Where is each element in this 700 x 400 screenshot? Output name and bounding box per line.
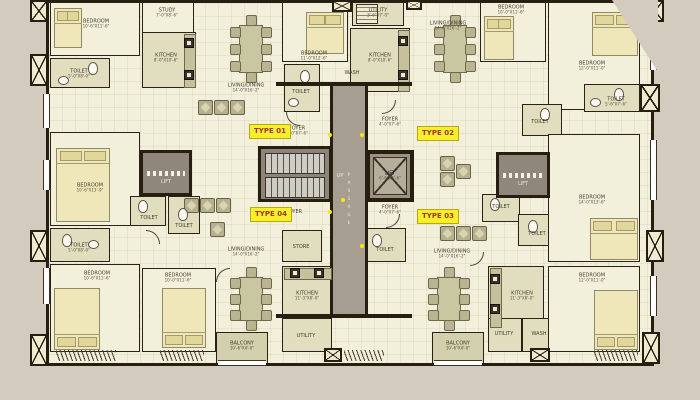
blanket-line (162, 332, 206, 333)
chair-icon (261, 278, 272, 289)
chair-icon (230, 44, 241, 55)
blanket-line (590, 233, 638, 234)
lift-door-strip (503, 173, 543, 178)
bed-icon (594, 290, 638, 350)
up-text: UP (337, 173, 344, 179)
sofa-seat-icon (214, 100, 229, 115)
duct-x-icon (406, 0, 422, 10)
duct-x-icon (332, 0, 352, 12)
room-label-bedroom7: BEDROOM10'-6"X11'-6" (84, 271, 111, 282)
room-dims: 8'-0"X10'-6" (154, 59, 178, 64)
pillow-icon (616, 221, 635, 231)
sofa-seat-icon (440, 226, 455, 241)
lift-dims: 6'-6"X6'-6" (379, 177, 401, 182)
pillow-icon (309, 15, 325, 25)
room-name: STORE (293, 244, 310, 250)
sofa-seat-icon (230, 100, 245, 115)
room-dims: 10'-6"X4'-0" (446, 347, 470, 352)
chair-icon (261, 27, 272, 38)
room-label-balcony1: BALCONY10'-6"X4'-0" (230, 341, 254, 352)
sink-icon (398, 36, 408, 46)
chair-icon (428, 278, 439, 289)
room-name: TOILET (292, 89, 309, 95)
room-label-living3: LIVING/DINING14'-0"X16'-2" (228, 247, 265, 258)
room-dims: 14'-0"X16'-2" (434, 255, 471, 260)
room-label-wash4: WASH (531, 331, 546, 337)
chair-icon (261, 294, 272, 305)
chair-icon (246, 72, 257, 83)
blanket-line (484, 31, 514, 32)
chair-icon (230, 61, 241, 72)
room-label-toilet8: TOILET (376, 247, 393, 253)
room-label-toilet4: TOILET5'-6"X7'-6" (605, 97, 627, 108)
sofa-seat-icon (456, 164, 471, 179)
sink-icon (290, 268, 300, 278)
sofa-seat-icon (200, 198, 215, 213)
room-dims: 4'-0"X7'-6" (379, 123, 401, 128)
type-badge-04: TYPE 04 (250, 207, 292, 222)
lift-label-right: LIFT (518, 181, 528, 187)
shaft-x-icon (30, 54, 48, 86)
pillow-icon (498, 19, 511, 29)
sofa-seat-icon (440, 156, 455, 171)
sink-icon (490, 274, 500, 284)
room-label-living4: LIVING/DINING14'-0"X16'-2" (434, 249, 471, 260)
room-label-study: STUDY7'-0"X8'-6" (156, 8, 178, 19)
sofa-seat-icon (456, 226, 471, 241)
room-name: UTILITY (297, 333, 316, 339)
stairs-up-label: UP (337, 173, 344, 179)
dining-table-icon (232, 270, 270, 328)
chair-icon (444, 320, 455, 331)
room-name: TOILET (376, 247, 393, 253)
room-label-store: STORE (293, 244, 310, 250)
room-name: TOILET (531, 119, 548, 125)
type-badge-02: TYPE 02 (417, 126, 459, 141)
room-dims: 5'-0"X8'-0" (68, 75, 90, 80)
chair-icon (459, 278, 470, 289)
room-label-foyer4: FOYER4'-0"X7'-6" (379, 205, 401, 216)
room-label-toilet6: TOILET (175, 223, 192, 229)
chair-icon (261, 310, 272, 321)
sink-icon (184, 38, 194, 48)
chair-icon (230, 27, 241, 38)
toilet-wc-icon (138, 200, 148, 213)
chair-icon (459, 310, 470, 321)
room-name: WASH (531, 331, 546, 337)
room-label-kitchen3: KITCHEN11'-3"X8'-0" (295, 291, 319, 302)
chair-icon (230, 310, 241, 321)
room-label-toilet1: TOILET5'-0"X8'-0" (68, 69, 90, 80)
window (43, 94, 50, 128)
dining-table-icon (430, 270, 468, 328)
room-dims: 10'-6"X4'-0" (230, 347, 254, 352)
type-badge-01: TYPE 01 (249, 124, 291, 139)
stove-icon (490, 304, 500, 314)
room-label-bedroom8: BEDROOM10'-0"X11'-6" (165, 273, 192, 284)
room-label-utility2: UTILITY3'-6"X7'-0" (367, 8, 389, 19)
lift-label-left: LIFT (161, 179, 171, 185)
room-label-bedroom3: BEDROOM10'-0"X11'-6" (498, 5, 525, 16)
shaft-x-icon (30, 0, 48, 22)
room-label-foyer2: FOYER4'-0"X7'-6" (379, 117, 401, 128)
table-top (239, 25, 263, 73)
sofa-seat-icon (198, 100, 213, 115)
blanket-line (306, 27, 344, 28)
lift-shaft-left (140, 150, 192, 196)
room-dims: 10'-0"X11'-6" (165, 279, 192, 284)
window (650, 276, 657, 316)
room-label-toilet7: TOILET5'-0"X8'-0" (68, 243, 90, 254)
room-label-kitchen1: KITCHEN8'-0"X10'-6" (154, 53, 178, 64)
chair-icon (261, 44, 272, 55)
table-top (443, 25, 467, 73)
chair-icon (230, 294, 241, 305)
blanket-line (56, 163, 110, 164)
balcony-railing-icon (160, 350, 204, 361)
room-label-toilet3: TOILET (531, 119, 548, 125)
room-label-bedroom5: BEDROOM10'-6"X13'-9" (77, 183, 104, 194)
lift-text: LIFT (518, 181, 528, 187)
chair-icon (428, 310, 439, 321)
stair-flight-lower (265, 177, 325, 198)
shaft-x-icon (642, 332, 660, 364)
balcony-railing-icon (56, 350, 116, 361)
room-name: TOILET (492, 204, 509, 210)
stove-icon (184, 70, 194, 80)
passage-dot-icon (360, 133, 364, 137)
window (650, 140, 657, 200)
sofa-seat-icon (210, 222, 225, 237)
room-label-bedroom2: BEDROOM11'-0"X12'-6" (301, 51, 328, 62)
pillow-icon (597, 337, 615, 347)
bed-icon (54, 288, 100, 350)
room-label-bedroom9: BEDROOM12'-0"X11'-0" (579, 273, 606, 284)
pillow-icon (185, 335, 203, 345)
room-dims: 10'-6"X11'-6" (84, 277, 111, 282)
chair-icon (459, 294, 470, 305)
core-wall-bottom (276, 314, 412, 318)
stairs (258, 146, 332, 202)
table-top (437, 277, 461, 321)
toilet-wc-icon (372, 234, 382, 247)
room-dims: 11'-3"X8'-0" (295, 297, 319, 302)
room-dims: 12'-0"X11'-0" (579, 67, 606, 72)
room-label-toilet5: TOILET (140, 215, 157, 221)
chair-icon (261, 61, 272, 72)
chair-icon (428, 294, 439, 305)
bed-icon (162, 288, 206, 348)
pillow-icon (595, 15, 614, 25)
room-label-toilet2: TOILET (292, 89, 309, 95)
passage-dot-icon (360, 244, 364, 248)
passage-dot-icon (328, 210, 332, 214)
room-label-utility3: UTILITY (297, 333, 316, 339)
window (434, 360, 482, 366)
room-label-kitchen2: KITCHEN8'-0"X10'-6" (368, 53, 392, 64)
bed-icon (54, 8, 82, 48)
core-wall-top (276, 82, 412, 86)
room-name: TOILET (175, 223, 192, 229)
shaft-x-icon (640, 84, 660, 112)
chair-icon (465, 27, 476, 38)
passage-corridor: PASSAGE (330, 84, 368, 316)
room-label-bedroom6: BEDROOM14'-0"X13'-6" (579, 195, 606, 206)
pillow-icon (165, 335, 183, 345)
stove-icon (314, 268, 324, 278)
pillow-icon (57, 337, 76, 347)
room-dims: 10'-6"X11'-6" (83, 25, 110, 30)
room-floor-toilet5 (130, 196, 166, 226)
chair-icon (246, 267, 257, 278)
room-dims: 11'-0"X12'-6" (301, 57, 328, 62)
room-label-toilet9: TOILET (492, 204, 509, 210)
duct-x-icon (324, 348, 342, 362)
blanket-line (54, 334, 100, 335)
pillow-icon (593, 221, 612, 231)
lift-label-center: LIFT6'-6"X6'-6" (379, 171, 401, 182)
basin-icon (590, 98, 601, 107)
sofa-seat-icon (472, 226, 487, 241)
sofa-seat-icon (216, 198, 231, 213)
room-dims: 7'-0"X8'-6" (156, 14, 178, 19)
room-label-toilet10: TOILET (528, 231, 545, 237)
window (43, 268, 50, 304)
room-label-living2: LIVING/DINING14'-0"X16'-2" (430, 21, 467, 32)
dining-table-icon (232, 18, 270, 80)
shaft-x-icon (30, 334, 48, 366)
chair-icon (246, 320, 257, 331)
room-name: WASH (344, 70, 359, 76)
floor-plan: PASSAGE UP LIFT6'-6"X6'-6" LIFT LIFT (0, 0, 700, 400)
stair-flight-upper (265, 153, 325, 174)
shaft-x-icon (646, 230, 664, 262)
chair-icon (246, 15, 257, 26)
bed-icon (306, 12, 344, 54)
chair-icon (434, 44, 445, 55)
pillow-icon (84, 151, 106, 161)
lift-text: LIFT (161, 179, 171, 185)
passage-dot-icon (341, 198, 345, 202)
chair-icon (444, 267, 455, 278)
room-dims: 8'-0"X10'-6" (368, 59, 392, 64)
room-name: TOILET (140, 215, 157, 221)
room-dims: 3'-6"X7'-0" (367, 14, 389, 19)
room-dims: 10'-6"X13'-9" (77, 189, 104, 194)
chair-icon (450, 72, 461, 83)
toilet-wc-icon (178, 208, 188, 221)
room-floor-toilet8 (366, 228, 406, 262)
room-name: UTILITY (495, 331, 514, 337)
passage-dot-icon (328, 133, 332, 137)
chair-icon (230, 278, 241, 289)
room-label-bedroom1: BEDROOM10'-6"X11'-6" (83, 19, 110, 30)
shaft-x-icon (30, 230, 48, 262)
room-dims: 14'-0"X13'-6" (579, 201, 606, 206)
pillow-icon (67, 11, 79, 21)
pillow-icon (325, 15, 341, 25)
passage-label: PASSAGE (347, 172, 352, 228)
chair-icon (434, 61, 445, 72)
table-top (239, 277, 263, 321)
room-dims: 14'-0"X16'-2" (228, 89, 265, 94)
blanket-line (594, 334, 638, 335)
pillow-icon (78, 337, 97, 347)
sofa-seat-icon (440, 172, 455, 187)
window (218, 360, 266, 366)
chair-icon (465, 61, 476, 72)
bed-icon (484, 16, 514, 60)
room-dims: 14'-0"X16'-2" (228, 253, 265, 258)
room-label-wash2: WASH (344, 70, 359, 76)
basin-icon (288, 98, 299, 107)
lift-door-strip (147, 171, 185, 176)
chair-icon (465, 44, 476, 55)
room-label-utility4: UTILITY (495, 331, 514, 337)
stove-icon (398, 70, 408, 80)
pillow-icon (617, 337, 635, 347)
lift-shaft-right (496, 152, 550, 198)
room-label-bedroom4: BEDROOM12'-0"X11'-0" (579, 61, 606, 72)
room-label-balcony2: BALCONY10'-6"X4'-0" (446, 341, 470, 352)
blanket-line (54, 23, 82, 24)
room-dims: 5'-0"X8'-0" (68, 249, 90, 254)
room-dims: 12'-0"X11'-0" (579, 279, 606, 284)
pillow-icon (60, 151, 82, 161)
room-dims: 4'-0"X7'-6" (379, 211, 401, 216)
room-dims: 10'-0"X11'-6" (498, 11, 525, 16)
window (43, 160, 50, 190)
type-badge-03: TYPE 03 (417, 209, 459, 224)
room-label-kitchen4: KITCHEN11'-3"X8'-0" (510, 291, 534, 302)
room-dims: 5'-6"X7'-6" (605, 103, 627, 108)
balcony-railing-icon (594, 350, 638, 361)
duct-x-icon (530, 348, 550, 362)
room-dims: 14'-0"X16'-2" (430, 27, 467, 32)
bed-icon (590, 218, 638, 260)
balcony-railing-icon (344, 350, 384, 361)
room-name: TOILET (528, 231, 545, 237)
room-label-living1: LIVING/DINING14'-0"X16'-2" (228, 83, 265, 94)
room-dims: 11'-3"X8'-0" (510, 297, 534, 302)
